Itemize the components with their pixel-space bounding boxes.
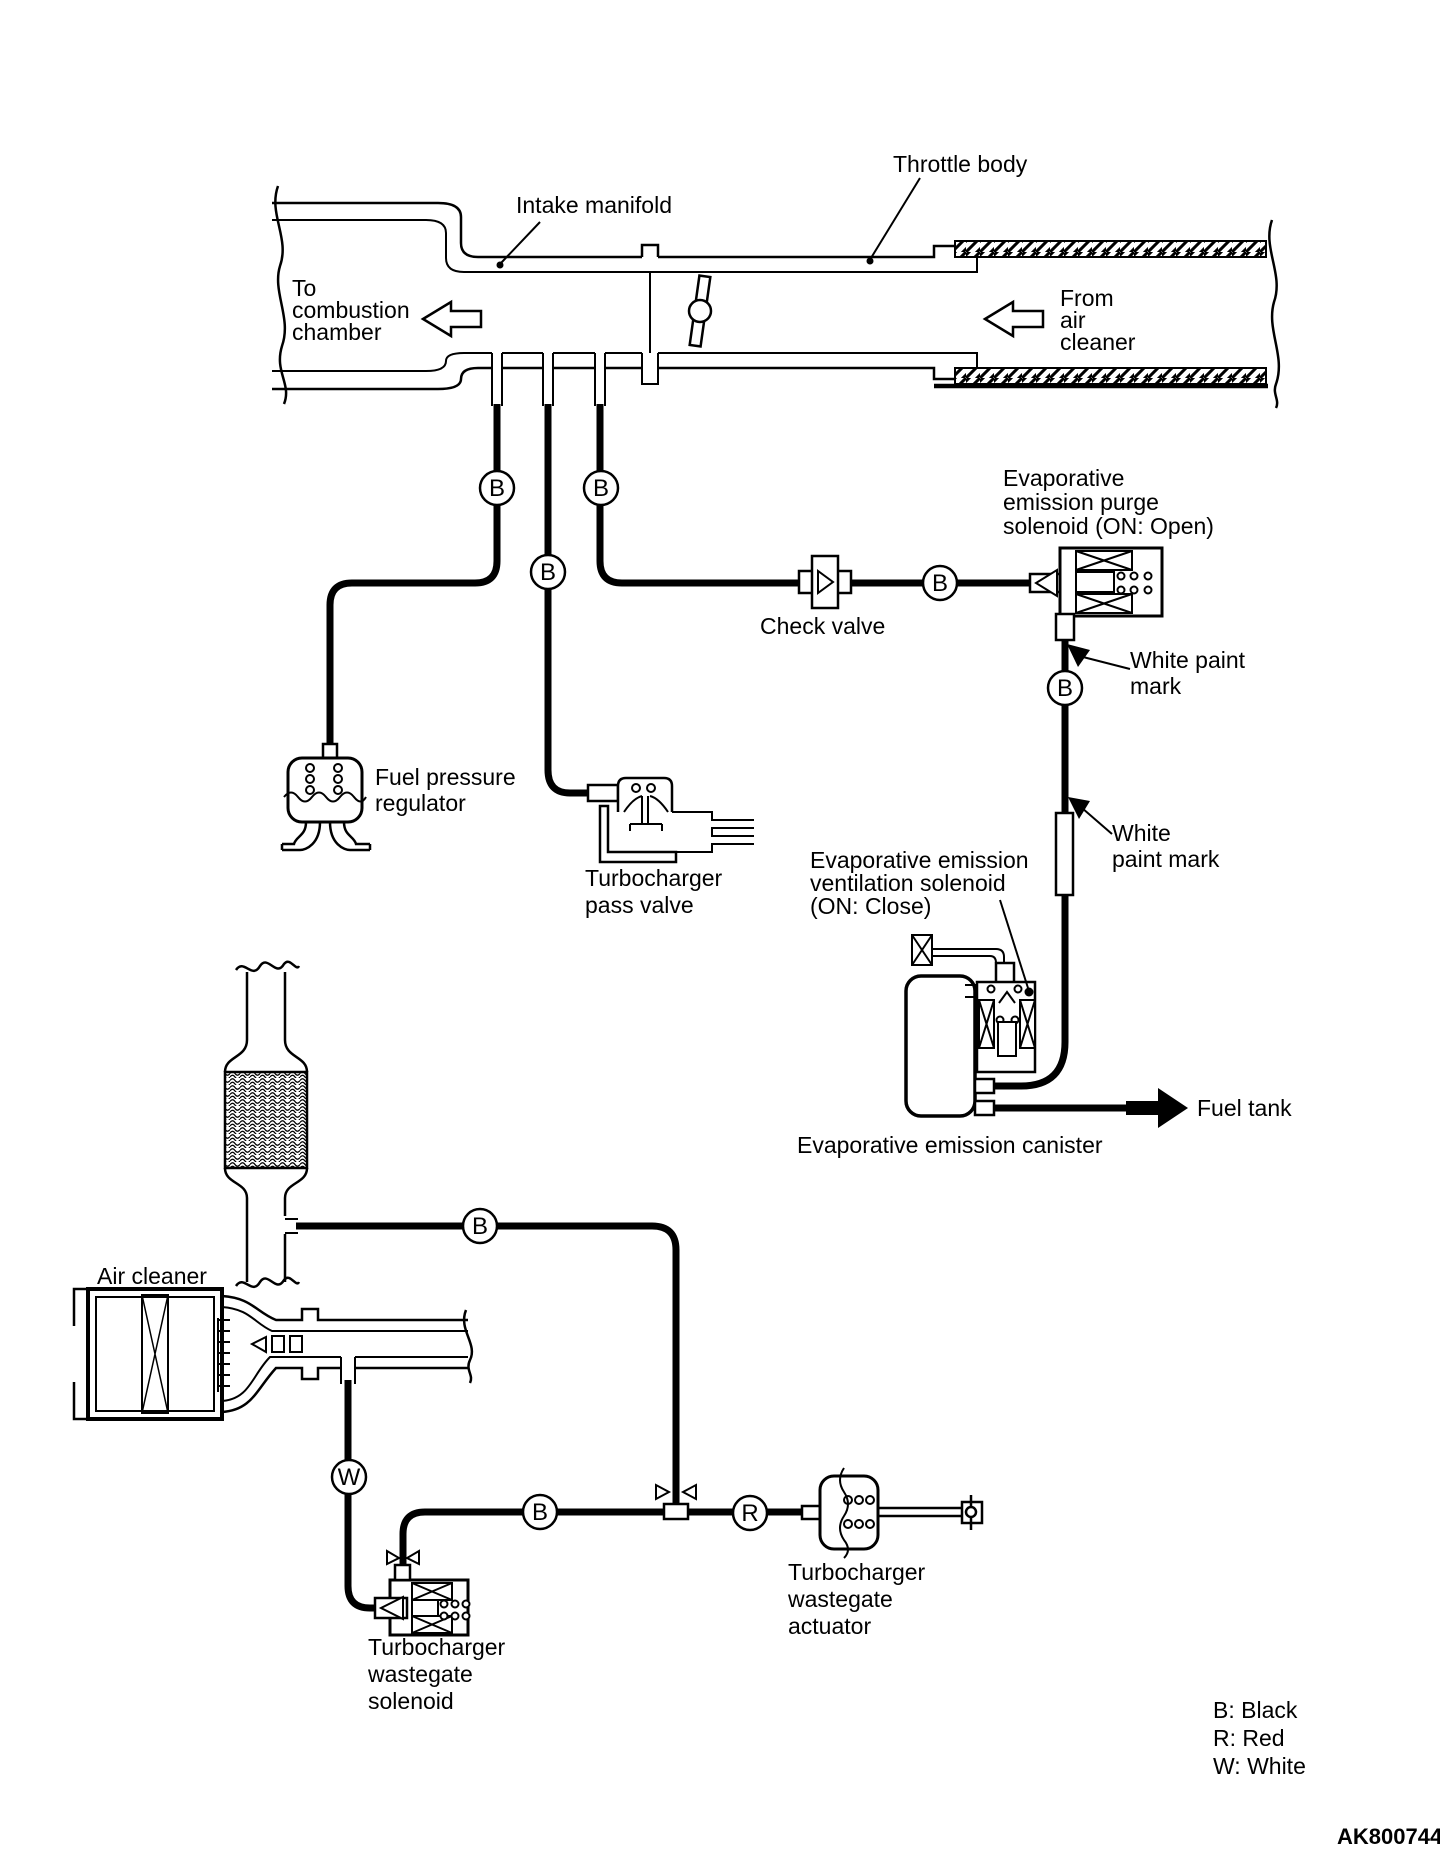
evap-purge-solenoid: Evaporative emission purge solenoid (ON:… bbox=[1003, 465, 1214, 640]
pipe-break-right bbox=[1269, 220, 1279, 408]
svg-text:mark: mark bbox=[1130, 673, 1182, 699]
fuel-tank-arrow: Fuel tank bbox=[1126, 1088, 1292, 1128]
check-valve-label: Check valve bbox=[760, 613, 885, 639]
actuator-inlet bbox=[802, 1506, 820, 1519]
marker-b-canister-line: B bbox=[1048, 671, 1082, 705]
marker-b-wastegate-line: B bbox=[523, 1495, 557, 1529]
fuel-tank-label: Fuel tank bbox=[1197, 1095, 1292, 1121]
throttle-butterfly-valve bbox=[689, 276, 711, 347]
svg-text:B: B bbox=[540, 559, 556, 586]
svg-text:solenoid: solenoid bbox=[368, 1688, 454, 1714]
intake-manifold-label: Intake manifold bbox=[516, 192, 672, 218]
regulator-legs bbox=[282, 822, 370, 850]
throttle-body-leader bbox=[871, 178, 920, 258]
ventilation-solenoid-label: Evaporative emission ventilation solenoi… bbox=[810, 847, 1029, 919]
intake-pipe-assembly: Intake manifold Throttle body To combust… bbox=[272, 151, 1279, 408]
throttle-body-label: Throttle body bbox=[893, 151, 1028, 177]
from-air-cleaner-label: From air cleaner bbox=[1060, 285, 1136, 355]
svg-text:paint mark: paint mark bbox=[1112, 846, 1220, 872]
legend-red: R: Red bbox=[1213, 1725, 1285, 1751]
turbo-wastegate-actuator: Turbocharger wastegate actuator bbox=[787, 1468, 982, 1639]
manifold-throttle-joint bbox=[642, 272, 658, 384]
svg-text:chamber: chamber bbox=[292, 319, 382, 345]
pass-valve-ports bbox=[672, 812, 754, 852]
svg-text:B: B bbox=[1057, 675, 1073, 702]
svg-text:(ON: Close): (ON: Close) bbox=[810, 893, 931, 919]
exhaust-converter-pipe bbox=[225, 962, 307, 1287]
turbocharger-pass-valve: Turbocharger pass valve bbox=[585, 778, 754, 918]
throttle-body-leader-dot bbox=[867, 258, 874, 265]
hose-pass-valve bbox=[548, 404, 594, 793]
actuator-body bbox=[820, 1476, 878, 1549]
purge-solenoid-label: Evaporative emission purge solenoid (ON:… bbox=[1003, 465, 1214, 539]
svg-text:B: B bbox=[593, 475, 609, 502]
svg-text:B: B bbox=[489, 475, 505, 502]
air-duct-top-wall-hatch bbox=[955, 241, 1266, 257]
vent-solenoid-nipple bbox=[996, 963, 1014, 983]
flow-arrow-right-icon bbox=[985, 302, 1043, 336]
marker-w-air-cleaner-line: W bbox=[332, 1460, 366, 1494]
svg-text:Turbocharger: Turbocharger bbox=[788, 1559, 926, 1585]
vacuum-hose-diagram: Intake manifold Throttle body To combust… bbox=[0, 0, 1440, 1856]
wastegate-top-arrow-left-icon bbox=[407, 1551, 419, 1564]
svg-text:Turbocharger: Turbocharger bbox=[585, 865, 723, 891]
svg-text:wastegate: wastegate bbox=[367, 1661, 473, 1687]
wastegate-top-arrow-right-icon bbox=[387, 1551, 399, 1564]
ventilation-solenoid-leader-dot bbox=[1025, 988, 1034, 997]
air-cleaner-assembly: Air cleaner bbox=[74, 1263, 472, 1419]
canister-purge-nipple bbox=[975, 1079, 994, 1093]
duct-nipple bbox=[341, 1357, 355, 1384]
svg-text:R: R bbox=[741, 1500, 758, 1527]
legend-white: W: White bbox=[1213, 1753, 1306, 1779]
figure-code: AK800744 bbox=[1337, 1824, 1440, 1849]
canister-label: Evaporative emission canister bbox=[797, 1132, 1103, 1158]
svg-text:actuator: actuator bbox=[788, 1613, 871, 1639]
duct-top-outer bbox=[222, 1296, 468, 1320]
svg-text:emission purge: emission purge bbox=[1003, 489, 1159, 515]
legend-black: B: Black bbox=[1213, 1697, 1298, 1723]
wastegate-actuator-label: Turbocharger wastegate actuator bbox=[787, 1559, 926, 1639]
vent-tube bbox=[932, 949, 1004, 963]
fuel-pressure-regulator: Fuel pressure regulator bbox=[282, 744, 516, 850]
canister-body bbox=[906, 976, 975, 1116]
white-paint-mark-upper: White paint mark bbox=[1067, 644, 1246, 699]
svg-text:White paint: White paint bbox=[1130, 647, 1246, 673]
svg-text:Turbocharger: Turbocharger bbox=[368, 1634, 506, 1660]
svg-text:White: White bbox=[1112, 820, 1171, 846]
marker-b-hose-regulator: B bbox=[480, 471, 514, 505]
pass-valve-body bbox=[600, 806, 676, 862]
hose-color-legend: B: Black R: Red W: White bbox=[1213, 1697, 1306, 1779]
marker-b-hose-purge-upper: B bbox=[584, 471, 618, 505]
svg-text:wastegate: wastegate bbox=[787, 1586, 893, 1612]
wastegate-solenoid-top-nipple bbox=[395, 1565, 410, 1580]
intake-manifold-leader-dot bbox=[497, 262, 504, 269]
svg-text:solenoid (ON: Open): solenoid (ON: Open) bbox=[1003, 513, 1214, 539]
air-duct-bottom-wall-hatch bbox=[955, 368, 1266, 384]
tee-arrow-left-icon bbox=[683, 1485, 696, 1499]
converter-break-top bbox=[236, 962, 299, 971]
white-paint-mark-lower: White paint mark bbox=[1056, 797, 1220, 895]
svg-text:Evaporative: Evaporative bbox=[1003, 465, 1124, 491]
svg-text:Fuel pressure: Fuel pressure bbox=[375, 764, 516, 790]
to-combustion-chamber-label: To combustion chamber bbox=[292, 275, 410, 345]
svg-text:B: B bbox=[532, 1499, 548, 1526]
purge-solenoid-outlet bbox=[1056, 614, 1074, 640]
actuator-rod bbox=[878, 1508, 962, 1516]
converter-break-bottom bbox=[236, 1278, 299, 1287]
check-valve: Check valve bbox=[760, 556, 885, 639]
manifold-runner-nipples bbox=[492, 353, 605, 406]
tee-arrow-right-icon bbox=[656, 1485, 669, 1499]
service-manual-page: Intake manifold Throttle body To combust… bbox=[0, 0, 1440, 1856]
svg-text:W: W bbox=[338, 1464, 361, 1491]
air-cleaner-label: Air cleaner bbox=[97, 1263, 207, 1289]
canister-tank-nipple bbox=[975, 1101, 994, 1115]
tee-connector bbox=[664, 1504, 688, 1519]
marker-b-converter-line: B bbox=[463, 1209, 497, 1243]
white-paint-band bbox=[1056, 813, 1073, 895]
marker-b-hose-pass-valve: B bbox=[531, 555, 565, 589]
marker-b-check-valve-line: B bbox=[923, 566, 957, 600]
fuel-pressure-regulator-label: Fuel pressure regulator bbox=[375, 764, 516, 816]
white-paint-upper-arrow-icon bbox=[1067, 644, 1090, 667]
turbocharger-pass-valve-label: Turbocharger pass valve bbox=[585, 865, 723, 918]
turbo-wastegate-solenoid: Turbocharger wastegate solenoid bbox=[367, 1551, 506, 1714]
svg-text:regulator: regulator bbox=[375, 790, 466, 816]
wastegate-solenoid-label: Turbocharger wastegate solenoid bbox=[367, 1634, 506, 1714]
flow-arrow-left-icon bbox=[423, 302, 481, 336]
fuel-tank-arrow-icon bbox=[1158, 1088, 1188, 1128]
svg-text:B: B bbox=[932, 570, 948, 597]
hose-color-markers: B B B B B B W B bbox=[332, 471, 1082, 1530]
hose-regulator bbox=[330, 404, 497, 756]
svg-text:B: B bbox=[472, 1213, 488, 1240]
marker-r-actuator-line: R bbox=[733, 1496, 767, 1530]
svg-text:pass valve: pass valve bbox=[585, 892, 694, 918]
svg-text:cleaner: cleaner bbox=[1060, 329, 1136, 355]
converter-body bbox=[225, 1072, 307, 1168]
duct-flow-arrow-icon bbox=[252, 1337, 266, 1352]
